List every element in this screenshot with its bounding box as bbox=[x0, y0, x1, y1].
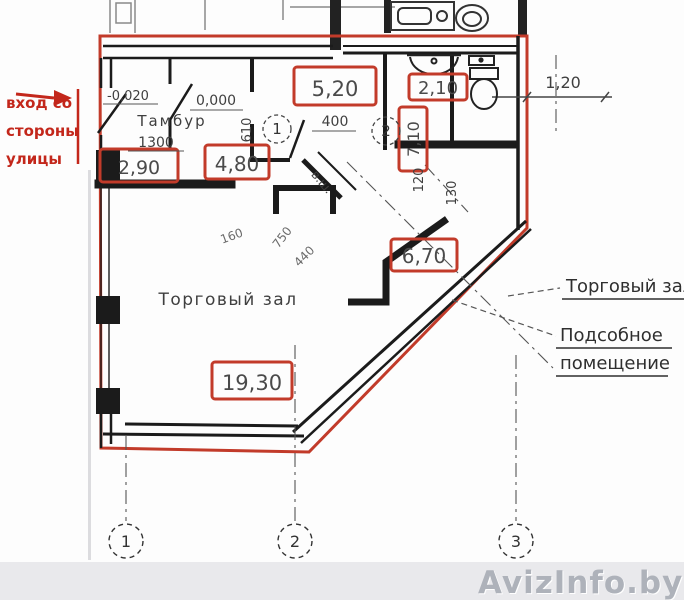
area-value-corridor: 4,80 bbox=[215, 152, 260, 176]
area-value-tambour: 2,90 bbox=[118, 157, 160, 179]
scan-left-shadow bbox=[88, 170, 91, 560]
entrance-note-line2: стороны bbox=[6, 122, 79, 140]
dim-400: 400 bbox=[322, 114, 349, 130]
tambour-label: Тамбур bbox=[136, 112, 206, 130]
floor-plan-drawing: 2,90 4,80 5,20 2,10 7,10 6,70 19,30 -0,0… bbox=[0, 0, 684, 600]
dim-120: 120 bbox=[412, 168, 427, 193]
area-value-wc: 2,10 bbox=[418, 78, 458, 99]
entrance-note-line1: вход со bbox=[6, 94, 72, 112]
axis-1-number: 1 bbox=[121, 532, 131, 551]
room-marker-1-number: 1 bbox=[272, 120, 282, 138]
legend-utility-label-line2: помещение bbox=[560, 353, 670, 374]
scanned-floor-plan-page: 2,90 4,80 5,20 2,10 7,10 6,70 19,30 -0,0… bbox=[0, 0, 684, 600]
dim-right-offset: 1,20 bbox=[545, 73, 581, 92]
watermark-text: AvizInfo.by bbox=[478, 565, 683, 600]
level-mark-inside: 0,000 bbox=[196, 93, 236, 109]
dim-130: 130 bbox=[445, 181, 460, 206]
room-marker-2-number: 2 bbox=[381, 122, 391, 140]
entrance-note-line3: улицы bbox=[6, 150, 62, 168]
hall-room-label: Торговый зал bbox=[157, 290, 297, 310]
axis-3-number: 3 bbox=[511, 532, 521, 551]
level-mark-outside: -0,020 bbox=[107, 89, 149, 104]
area-value-room-top: 5,20 bbox=[312, 77, 359, 101]
area-value-hall: 19,30 bbox=[222, 371, 282, 395]
area-value-wc2: 7,10 bbox=[404, 121, 423, 157]
legend-utility-label-line1: Подсобное bbox=[560, 325, 663, 346]
axis-2-number: 2 bbox=[290, 532, 300, 551]
legend-hall-label: Торговый зал bbox=[565, 276, 684, 297]
watermark: AvizInfo.by AvizInfo.by bbox=[478, 565, 684, 600]
dim-610: 610 bbox=[240, 118, 255, 143]
dim-1300: 1300 bbox=[138, 135, 174, 151]
area-value-utility: 6,70 bbox=[402, 244, 447, 268]
